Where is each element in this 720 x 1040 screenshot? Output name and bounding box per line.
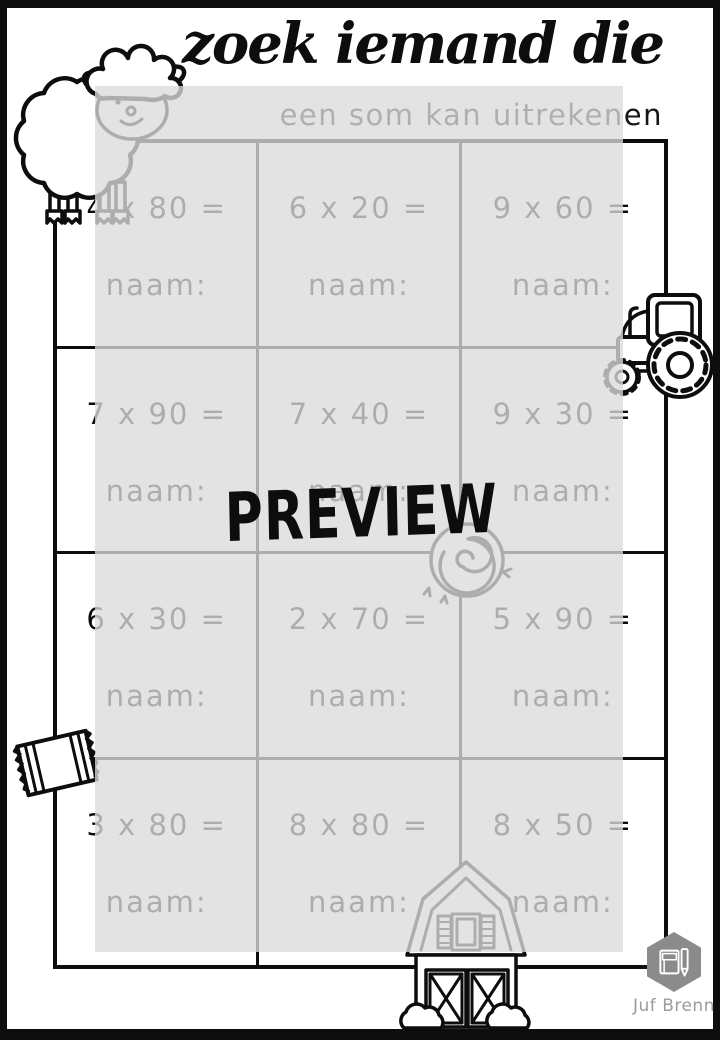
- book-and-pencil-icon: [654, 940, 694, 984]
- brand-logo: Juf Brenn: [622, 932, 720, 1016]
- page-frame-top: [0, 0, 720, 8]
- page-frame-right: [713, 0, 720, 1040]
- worksheet-page: zoek iemand die een som kan uitrekenen 4…: [0, 0, 720, 1040]
- preview-watermark: PREVIEW: [224, 471, 499, 558]
- page-frame-bottom: [0, 1029, 720, 1040]
- page-frame-left: [0, 0, 7, 1040]
- brand-hexagon: [647, 932, 701, 992]
- hay-bale-illustration: [10, 722, 105, 807]
- brand-name: Juf Brenn: [622, 996, 720, 1016]
- page-title: zoek iemand die: [182, 14, 663, 76]
